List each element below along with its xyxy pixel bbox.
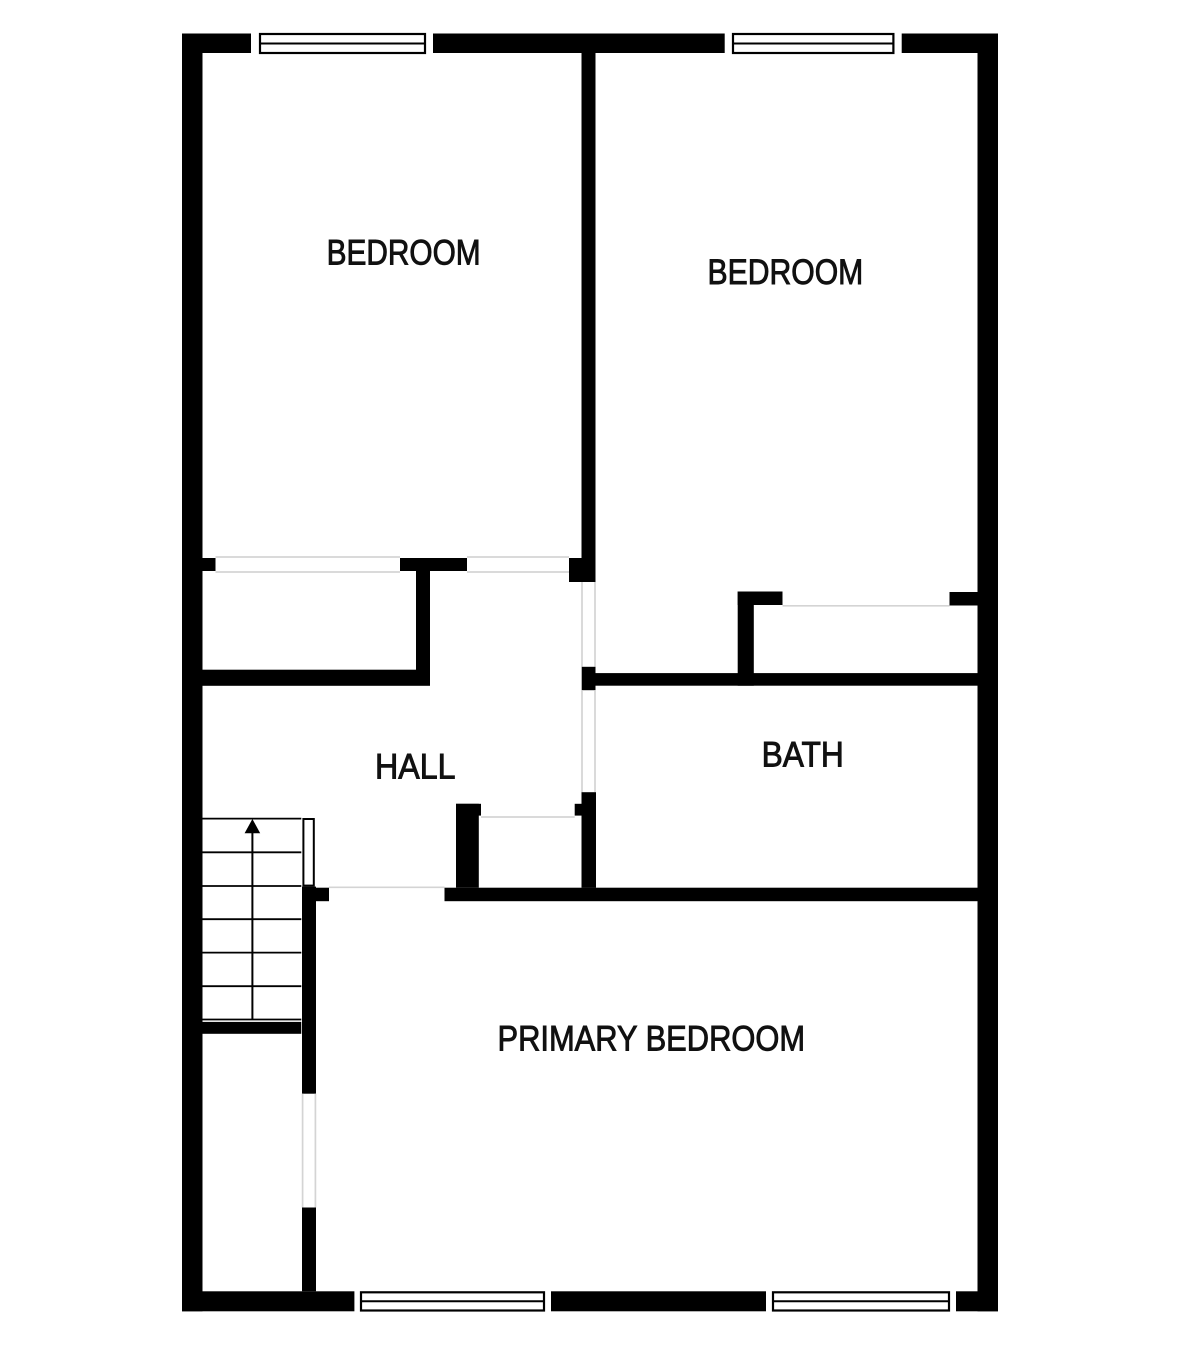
svg-text:PRIMARY BEDROOM: PRIMARY BEDROOM xyxy=(498,1020,806,1059)
svg-text:HALL: HALL xyxy=(375,748,456,787)
svg-text:BATH: BATH xyxy=(762,736,844,775)
svg-text:BEDROOM: BEDROOM xyxy=(327,234,481,273)
svg-text:BEDROOM: BEDROOM xyxy=(708,253,864,292)
